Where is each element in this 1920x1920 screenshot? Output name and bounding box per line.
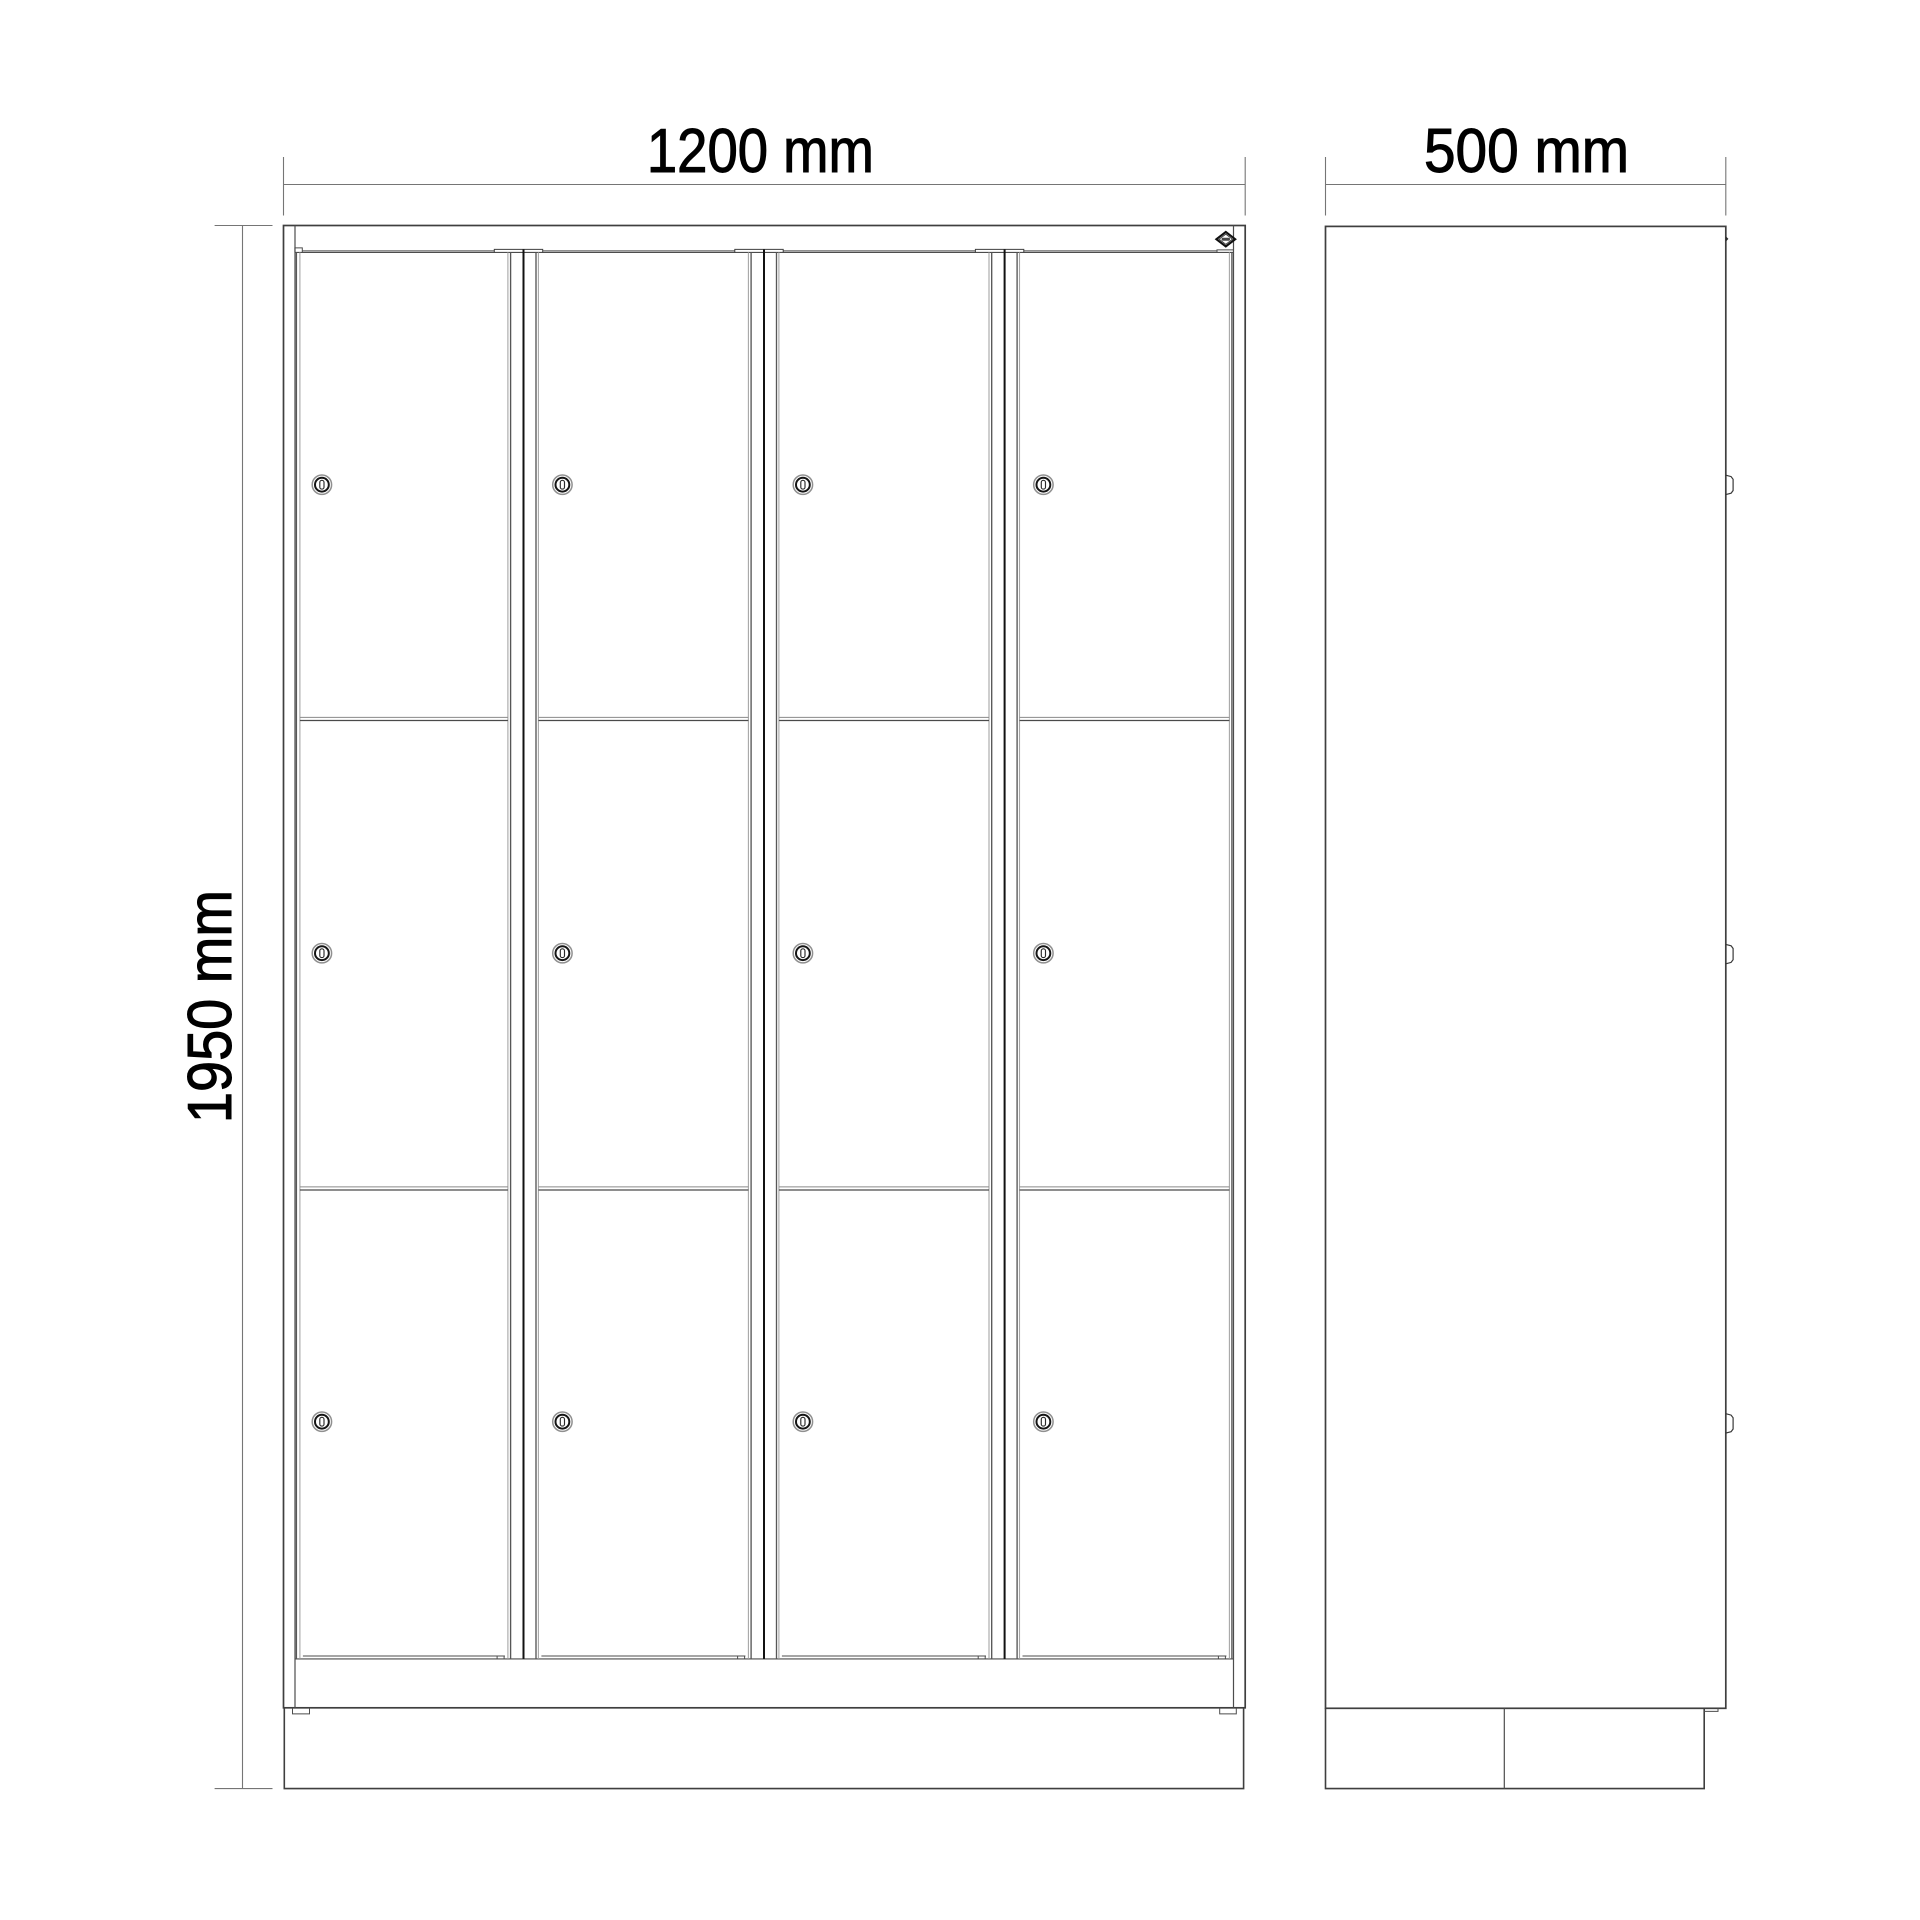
svg-text:1950 mm: 1950 mm — [176, 890, 245, 1123]
svg-text:500 mm: 500 mm — [1424, 117, 1629, 186]
svg-text:1200 mm: 1200 mm — [647, 117, 874, 186]
